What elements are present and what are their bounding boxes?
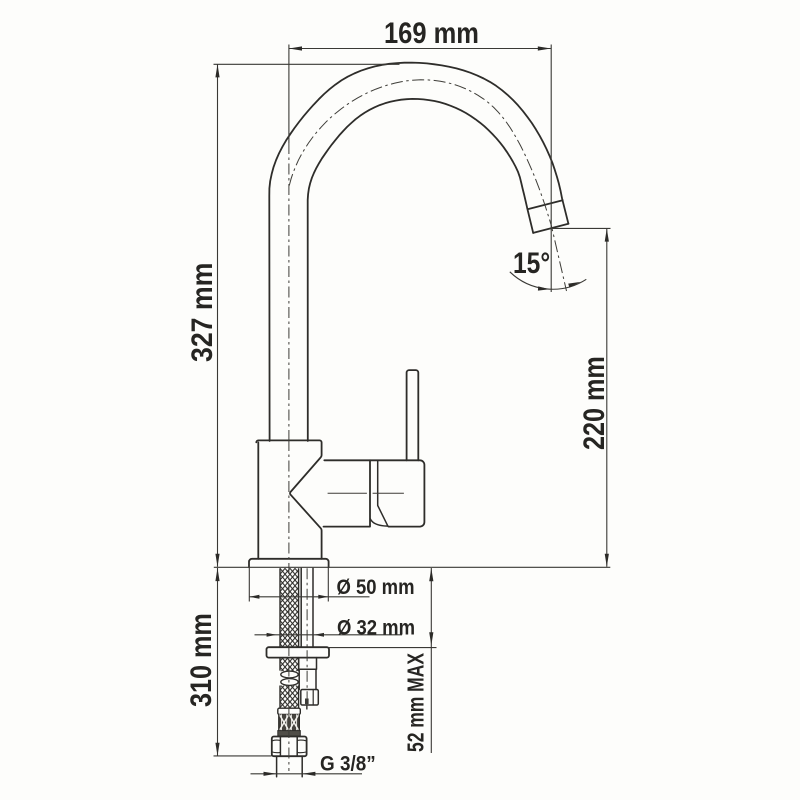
svg-text:G 3/8”: G 3/8” — [320, 753, 376, 776]
svg-text:327 mm: 327 mm — [186, 263, 220, 362]
svg-text:Ø 32 mm: Ø 32 mm — [337, 616, 415, 639]
svg-text:310 mm: 310 mm — [184, 613, 218, 707]
svg-text:52 mm MAX: 52 mm MAX — [404, 653, 429, 752]
svg-text:Ø 50 mm: Ø 50 mm — [337, 576, 415, 599]
svg-text:169 mm: 169 mm — [384, 16, 479, 49]
svg-text:220 mm: 220 mm — [577, 356, 611, 450]
svg-text:15°: 15° — [513, 246, 550, 280]
